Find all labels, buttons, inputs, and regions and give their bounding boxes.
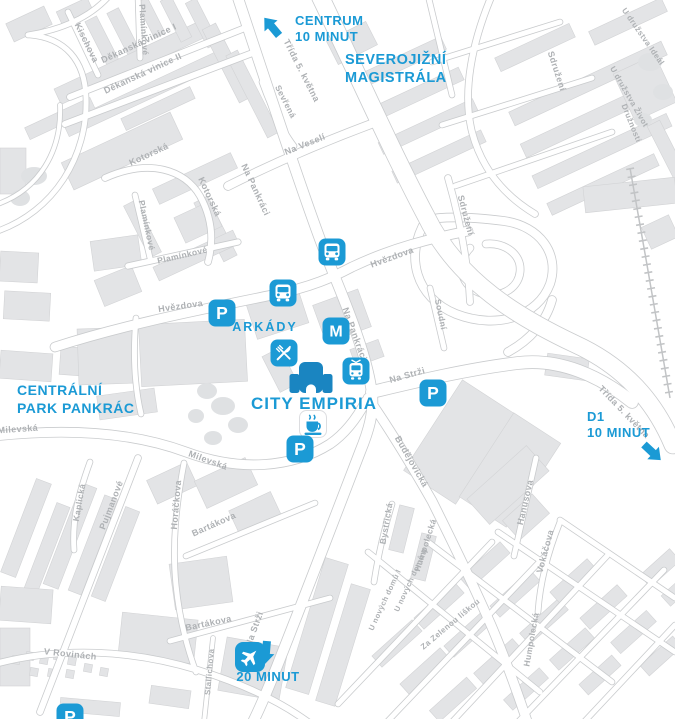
park-trees (204, 431, 222, 445)
poi-label-centrum: CENTRUM10 MINUT (295, 13, 364, 44)
building-block (0, 586, 53, 624)
building-block (99, 667, 108, 676)
park-trees (228, 417, 248, 433)
map-canvas: P M (0, 0, 675, 719)
building-block (29, 667, 38, 676)
pankrac-area-map: P M (0, 0, 675, 719)
park-trees (188, 409, 204, 423)
bus-icon (270, 280, 297, 307)
park-trees (211, 397, 235, 415)
building-block (3, 291, 50, 321)
park-trees (197, 383, 217, 399)
park-trees (653, 84, 673, 100)
building-block (65, 669, 74, 678)
building-block (83, 663, 92, 672)
parking-icon (209, 300, 236, 327)
airplane-icon (235, 642, 265, 672)
metro-icon (323, 318, 350, 345)
building-block (0, 148, 26, 194)
building-block (0, 350, 53, 382)
restaurant-icon (271, 340, 298, 367)
coffee-icon (300, 411, 327, 438)
parking-icon (420, 380, 447, 407)
bus-icon (319, 239, 346, 266)
building-block (138, 319, 247, 386)
parking-icon (287, 436, 314, 463)
building-block (0, 251, 39, 283)
poi-label-arkady: ARKÁDY (232, 319, 297, 334)
tram-icon (343, 358, 370, 385)
parking-icon (57, 704, 84, 719)
